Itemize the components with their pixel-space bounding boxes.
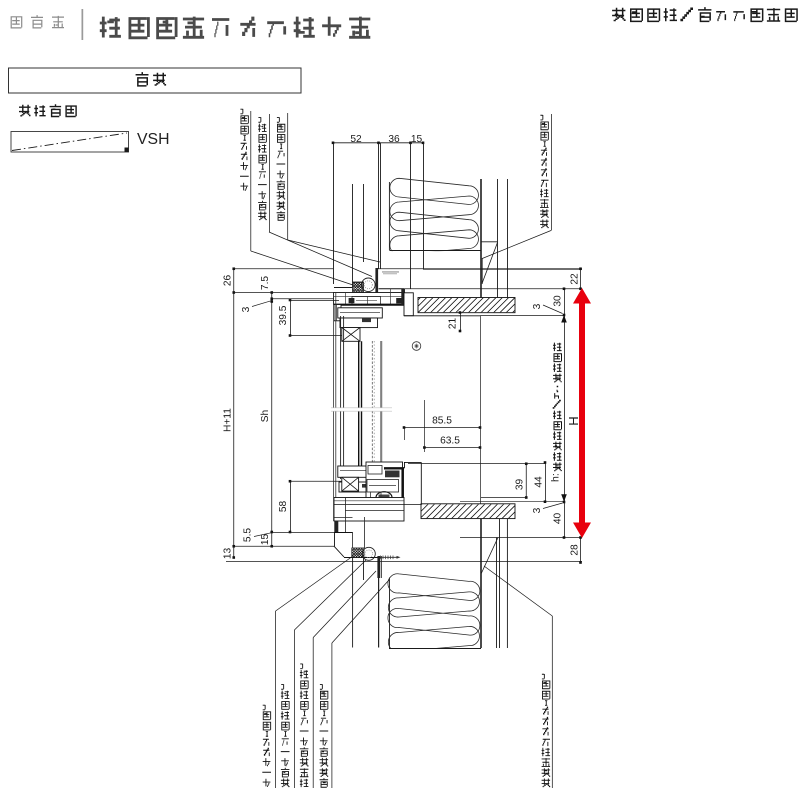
svg-text:36: 36 [388, 134, 400, 145]
svg-text:3: 3 [532, 303, 543, 309]
svg-text:5.5: 5.5 [243, 528, 254, 542]
svg-text:h:: h: [550, 473, 562, 482]
svg-text:7.5: 7.5 [260, 276, 271, 290]
svg-text:28: 28 [570, 544, 581, 556]
svg-text:H+11: H+11 [223, 408, 234, 432]
svg-text:58: 58 [278, 501, 289, 513]
svg-text:39.5: 39.5 [278, 305, 289, 325]
svg-text:22: 22 [570, 273, 581, 285]
svg-text:VSH: VSH [137, 131, 169, 148]
svg-text:63.5: 63.5 [440, 436, 460, 447]
svg-text:30: 30 [553, 295, 564, 307]
svg-text:Sh: Sh [260, 410, 271, 422]
svg-text:H: H [566, 416, 581, 425]
svg-text:21: 21 [448, 318, 459, 330]
svg-text:52: 52 [350, 134, 362, 145]
svg-text:40: 40 [553, 513, 564, 525]
svg-text:39: 39 [515, 479, 526, 491]
svg-text:13: 13 [223, 548, 234, 560]
svg-text:3: 3 [241, 306, 252, 312]
svg-text:26: 26 [223, 275, 234, 287]
svg-text:3: 3 [532, 507, 543, 513]
svg-text:85.5: 85.5 [432, 416, 452, 427]
svg-text:44: 44 [534, 476, 545, 488]
svg-text:15: 15 [411, 134, 423, 145]
svg-text:15: 15 [260, 534, 271, 546]
